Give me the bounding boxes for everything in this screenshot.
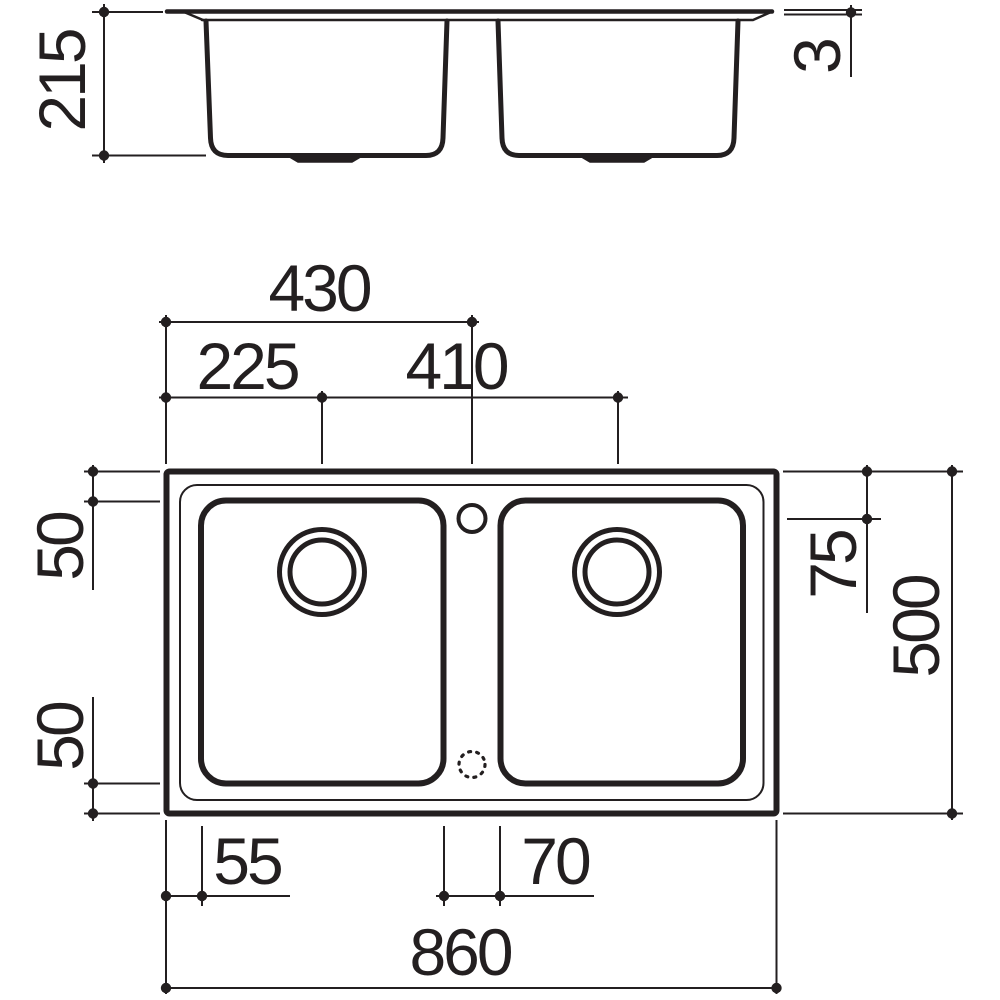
dimension-dot bbox=[161, 983, 171, 993]
dimension-top-chain: 430 225 410 bbox=[159, 251, 628, 464]
dimension-bottom-chain: 55 70 860 bbox=[161, 820, 782, 994]
elevation-left-drain-boss bbox=[287, 156, 363, 163]
dimension-dot bbox=[99, 7, 109, 17]
dimension-dot bbox=[862, 514, 872, 524]
dim-label-rim-bottom-inset: 50 bbox=[23, 702, 97, 771]
dim-label-divider-width: 70 bbox=[521, 824, 590, 898]
drawing-svg: 215 3 bbox=[0, 0, 1000, 1000]
dimension-dot bbox=[467, 317, 477, 327]
dimension-right-side: 75 500 bbox=[783, 465, 963, 820]
dim-label-bowl-depth: 215 bbox=[25, 30, 99, 131]
dimension-dot bbox=[88, 496, 98, 506]
plan-dotted-hole bbox=[459, 752, 485, 778]
dim-label-tap-hole-offset: 75 bbox=[796, 531, 870, 599]
elevation-right-bowl-profile bbox=[498, 21, 738, 156]
plan-right-bowl bbox=[501, 501, 744, 784]
dim-label-overall-width: 860 bbox=[409, 915, 511, 989]
dimension-dot bbox=[161, 392, 171, 402]
dimension-dot bbox=[439, 891, 449, 901]
technical-drawing-sink: 215 3 bbox=[0, 0, 1000, 1000]
elevation-left-bowl-profile bbox=[206, 21, 447, 156]
plan-outer-edge bbox=[167, 472, 777, 814]
dim-label-rim-top-inset: 50 bbox=[23, 512, 97, 581]
plan-left-drain-inner-ring bbox=[290, 540, 354, 604]
plan-view: 430 225 410 50 50 bbox=[23, 251, 963, 994]
dimension-dot bbox=[161, 317, 171, 327]
dimension-dot bbox=[161, 891, 171, 901]
dimension-dot bbox=[862, 466, 872, 476]
plan-left-bowl bbox=[201, 501, 444, 784]
dim-label-rim-thickness: 3 bbox=[780, 40, 854, 74]
dimension-left-insets: 50 50 bbox=[23, 465, 160, 821]
dimension-dot bbox=[947, 466, 957, 476]
dim-label-drain-spacing: 410 bbox=[405, 329, 507, 403]
dim-label-center-from-left: 430 bbox=[268, 251, 370, 325]
dimension-dot bbox=[771, 983, 781, 993]
dimension-dot bbox=[317, 392, 327, 402]
dimension-dot bbox=[88, 808, 98, 818]
dimension-dot bbox=[613, 392, 623, 402]
dimension-dot bbox=[99, 150, 109, 160]
dimension-dot bbox=[846, 7, 856, 17]
dimension-dot bbox=[88, 778, 98, 788]
plan-right-drain-inner-ring bbox=[585, 540, 649, 604]
plan-tap-hole bbox=[459, 505, 486, 532]
elevation-view: 215 3 bbox=[25, 4, 862, 163]
dim-label-drain-center-from-left: 225 bbox=[196, 329, 297, 403]
dimension-bowl-depth: 215 bbox=[25, 4, 206, 163]
dimension-dot bbox=[947, 808, 957, 818]
dimension-dot bbox=[88, 466, 98, 476]
dimension-dot bbox=[495, 891, 505, 901]
elevation-right-drain-boss bbox=[579, 156, 655, 163]
dim-label-overall-depth: 500 bbox=[879, 575, 953, 677]
dimension-rim-thickness: 3 bbox=[780, 5, 862, 77]
dimension-dot bbox=[197, 891, 207, 901]
dim-label-left-rim-width: 55 bbox=[213, 824, 281, 898]
